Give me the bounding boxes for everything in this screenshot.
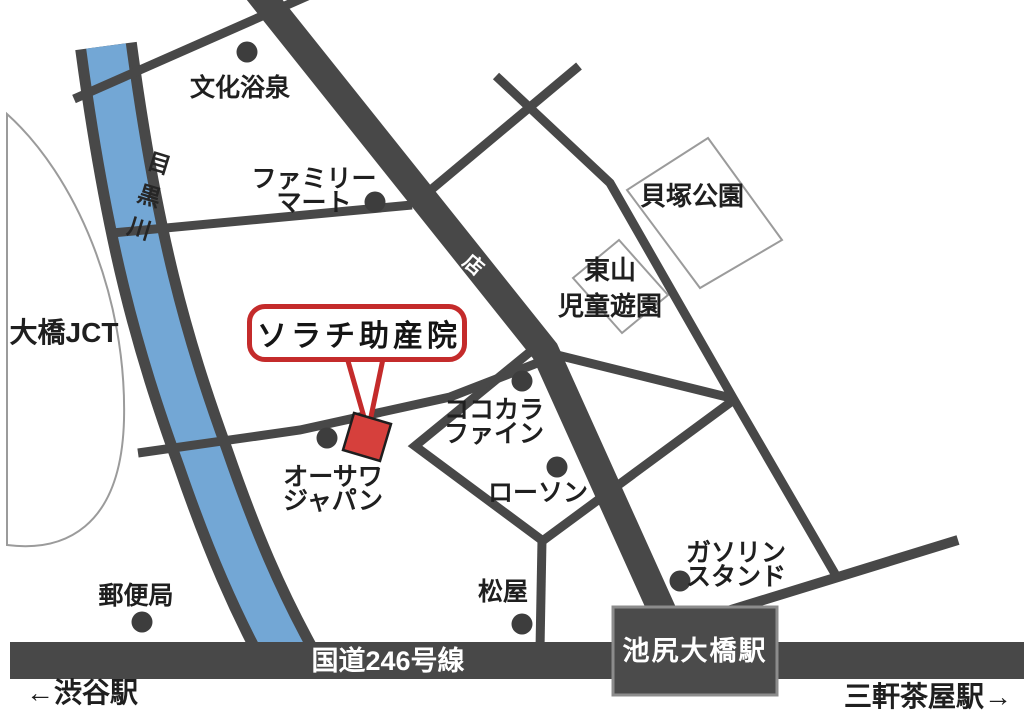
route-246-road [10,642,1024,679]
higashiyama-line1: 東山 [558,252,662,288]
gas-station-label: ガソリン スタンド [686,541,786,589]
lawson-dot [547,457,568,478]
post-office-dot [132,612,153,633]
clinic-title: ソラチ助産院 [257,311,461,355]
cocokara-fine-label: ココカラ ファイン [444,398,544,446]
ikejiri-ohashi-station-label: 池尻大橋駅 [623,639,768,663]
osawa-japan-label: オーサワ ジャパン [283,465,383,513]
bunka-yokusen-dot [237,42,258,63]
family-mart-label: ファミリー マート [251,167,376,215]
road-matsuya-east [540,540,542,649]
bunka-yokusen-label: 文化浴泉 [190,76,290,100]
kaizuka-park-label: 貝塚公園 [640,184,744,208]
osawa-japan-dot [317,428,338,449]
shibuya-direction-label: ←渋谷駅 [26,681,138,705]
higashiyama-park-label: 東山 児童遊園 [558,252,662,324]
lawson-label: ローソン [488,481,588,505]
route-246-label: 国道246号線 [311,649,464,673]
matsuya-label: 松屋 [478,580,528,604]
sangenjaya-direction-label: 三軒茶屋駅→ [844,685,1012,709]
post-office-label: 郵便局 [98,584,173,608]
higashiyama-line2: 児童遊園 [558,288,662,324]
clinic-callout-bubble: ソラチ助産院 [247,304,467,362]
matsuya-dot [512,614,533,635]
ohashi-jct-label: 大橋JCT [10,321,119,345]
cocokara-fine-dot [512,371,533,392]
access-map: 商店街 目黒川 国道246号線 池尻大橋駅 ←渋谷駅 三軒茶屋駅→ 大橋JCT … [0,0,1024,711]
